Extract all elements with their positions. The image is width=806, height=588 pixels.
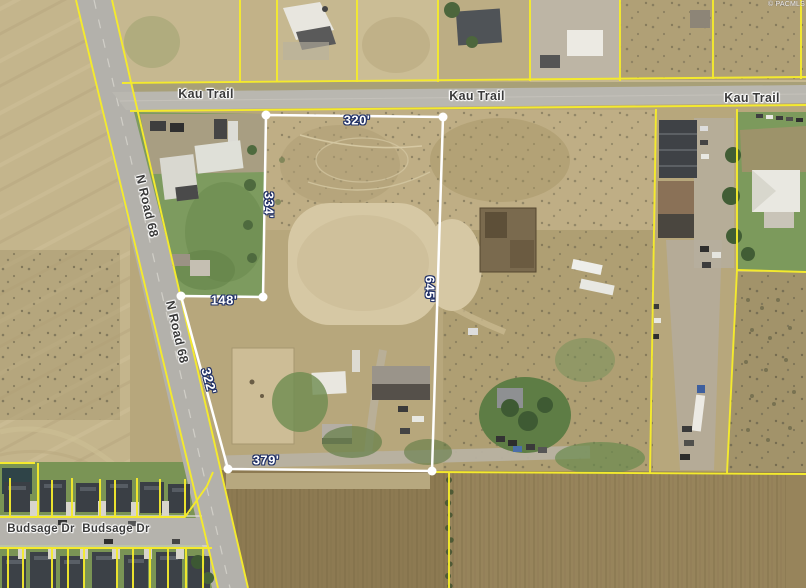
vertex-dot	[428, 467, 437, 476]
aerial-imagery	[0, 0, 806, 588]
map-viewport[interactable]: Kau Trail Kau Trail Kau Trail N Road 68 …	[0, 0, 806, 588]
vertex-dot	[224, 465, 233, 474]
vertex-dot	[439, 113, 448, 122]
vertex-dot	[177, 292, 186, 301]
imagery-copyright-watermark: © PACMLS	[768, 1, 805, 8]
vertex-dot	[259, 293, 268, 302]
vertex-dot	[262, 111, 271, 120]
